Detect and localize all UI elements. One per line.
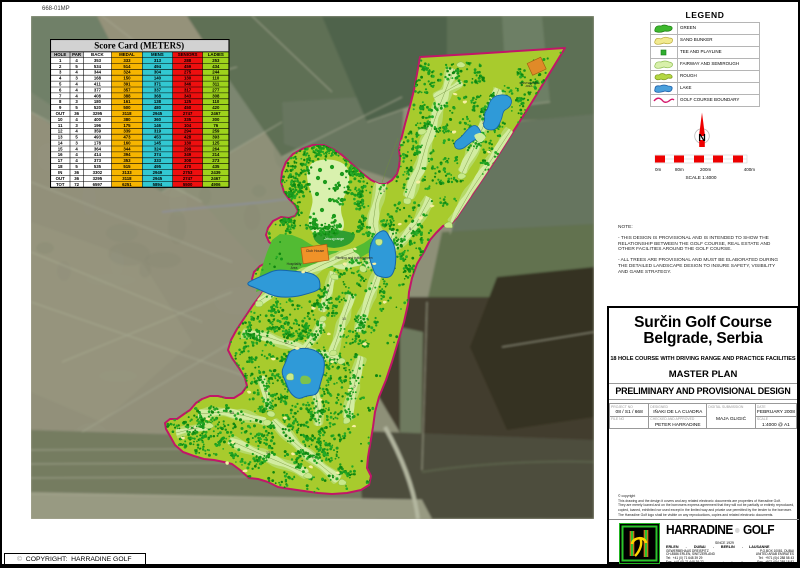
svg-text:11: 11 bbox=[58, 123, 63, 128]
svg-text:TOT: TOT bbox=[56, 182, 65, 187]
svg-text:470: 470 bbox=[184, 164, 192, 169]
svg-text:259: 259 bbox=[212, 129, 220, 134]
svg-text:36: 36 bbox=[74, 111, 79, 116]
svg-text:10: 10 bbox=[58, 117, 63, 122]
svg-text:353: 353 bbox=[123, 158, 131, 163]
svg-text:6597: 6597 bbox=[93, 182, 103, 187]
svg-text:244: 244 bbox=[212, 70, 220, 75]
svg-text:18: 18 bbox=[58, 164, 63, 169]
svg-text:2949: 2949 bbox=[153, 170, 163, 175]
svg-text:76: 76 bbox=[213, 123, 218, 128]
svg-text:110: 110 bbox=[212, 99, 220, 104]
svg-text:308: 308 bbox=[184, 158, 192, 163]
svg-text:435: 435 bbox=[212, 164, 220, 169]
svg-text:214: 214 bbox=[212, 152, 220, 157]
svg-text:300: 300 bbox=[212, 117, 220, 122]
svg-text:MENS: MENS bbox=[151, 52, 164, 57]
svg-text:13: 13 bbox=[58, 135, 63, 140]
svg-text:3295: 3295 bbox=[93, 111, 103, 116]
svg-text:373: 373 bbox=[94, 158, 102, 163]
svg-text:36: 36 bbox=[74, 176, 79, 181]
svg-text:SENIORS: SENIORS bbox=[178, 52, 198, 57]
svg-text:2467: 2467 bbox=[211, 111, 221, 116]
svg-text:138: 138 bbox=[154, 99, 162, 104]
svg-text:2467: 2467 bbox=[211, 176, 221, 181]
svg-text:304: 304 bbox=[154, 70, 162, 75]
svg-text:357: 357 bbox=[123, 87, 131, 92]
svg-text:535: 535 bbox=[94, 164, 102, 169]
svg-text:0m: 0m bbox=[655, 167, 662, 172]
svg-text:428: 428 bbox=[184, 135, 192, 140]
svg-text:146: 146 bbox=[154, 123, 162, 128]
svg-text:LADIES: LADIES bbox=[208, 52, 224, 57]
svg-text:371: 371 bbox=[154, 82, 162, 87]
svg-text:319: 319 bbox=[154, 129, 162, 134]
svg-text:333: 333 bbox=[154, 158, 162, 163]
svg-text:125: 125 bbox=[184, 99, 192, 104]
svg-text:359: 359 bbox=[94, 129, 102, 134]
svg-text:7: 7 bbox=[354, 385, 356, 389]
svg-text:368: 368 bbox=[154, 93, 162, 98]
svg-text:344: 344 bbox=[94, 70, 102, 75]
svg-text:Club House: Club House bbox=[306, 249, 324, 253]
svg-text:313: 313 bbox=[154, 58, 162, 63]
svg-text:200m: 200m bbox=[700, 167, 712, 172]
svg-text:2945: 2945 bbox=[153, 111, 163, 116]
svg-text:72: 72 bbox=[74, 182, 79, 187]
svg-text:391: 391 bbox=[123, 82, 131, 87]
svg-text:414: 414 bbox=[94, 152, 102, 157]
svg-text:OUT: OUT bbox=[56, 111, 65, 116]
svg-text:324: 324 bbox=[123, 70, 131, 75]
svg-text:SCALE 1:4000: SCALE 1:4000 bbox=[685, 175, 716, 180]
svg-text:6251: 6251 bbox=[122, 182, 132, 187]
svg-text:16: 16 bbox=[58, 152, 63, 157]
svg-text:400: 400 bbox=[94, 117, 102, 122]
svg-text:453: 453 bbox=[154, 135, 162, 140]
svg-text:339: 339 bbox=[123, 129, 131, 134]
svg-text:BACK: BACK bbox=[91, 52, 105, 57]
svg-text:3295: 3295 bbox=[93, 176, 103, 181]
svg-text:3302: 3302 bbox=[93, 170, 103, 175]
svg-text:AREA: AREA bbox=[525, 84, 532, 88]
svg-text:HOLE: HOLE bbox=[54, 52, 66, 57]
svg-text:353: 353 bbox=[94, 58, 102, 63]
svg-text:393: 393 bbox=[212, 135, 220, 140]
svg-text:311: 311 bbox=[212, 82, 220, 87]
svg-text:411: 411 bbox=[94, 82, 102, 87]
svg-text:317: 317 bbox=[184, 87, 192, 92]
svg-text:308: 308 bbox=[212, 93, 220, 98]
svg-text:514: 514 bbox=[123, 64, 131, 69]
svg-text:273: 273 bbox=[212, 158, 220, 163]
svg-text:388: 388 bbox=[123, 93, 131, 98]
svg-text:IN: IN bbox=[58, 170, 62, 175]
svg-text:408: 408 bbox=[94, 93, 102, 98]
svg-text:288: 288 bbox=[184, 58, 192, 63]
svg-text:2439: 2439 bbox=[211, 170, 221, 175]
svg-text:324: 324 bbox=[154, 146, 162, 151]
svg-text:520: 520 bbox=[94, 105, 102, 110]
svg-text:PAR: PAR bbox=[72, 52, 82, 57]
svg-text:110: 110 bbox=[212, 76, 220, 81]
svg-text:493: 493 bbox=[94, 135, 102, 140]
svg-text:434: 434 bbox=[212, 64, 220, 69]
svg-text:337: 337 bbox=[154, 87, 162, 92]
svg-text:MEDAL: MEDAL bbox=[119, 52, 135, 57]
svg-text:2747: 2747 bbox=[183, 176, 193, 181]
svg-text:1: 1 bbox=[383, 189, 385, 193]
svg-text:343: 343 bbox=[184, 93, 192, 98]
svg-text:5500: 5500 bbox=[183, 182, 193, 187]
svg-text:5894: 5894 bbox=[153, 182, 163, 187]
svg-text:495: 495 bbox=[154, 164, 162, 169]
svg-text:150: 150 bbox=[123, 76, 131, 81]
svg-text:360: 360 bbox=[154, 117, 162, 122]
svg-text:380: 380 bbox=[123, 117, 131, 122]
svg-text:5: 5 bbox=[409, 227, 411, 231]
svg-text:480: 480 bbox=[154, 105, 162, 110]
svg-text:180: 180 bbox=[94, 99, 102, 104]
svg-text:534: 534 bbox=[94, 64, 102, 69]
svg-text:349: 349 bbox=[184, 152, 192, 157]
svg-text:275: 275 bbox=[184, 70, 192, 75]
svg-text:145: 145 bbox=[154, 141, 162, 146]
svg-text:14: 14 bbox=[58, 141, 63, 146]
svg-text:130: 130 bbox=[184, 141, 192, 146]
svg-text:299: 299 bbox=[184, 146, 192, 151]
svg-text:125: 125 bbox=[212, 141, 220, 146]
svg-text:Driving range: Driving range bbox=[324, 237, 344, 241]
svg-text:4906: 4906 bbox=[211, 182, 221, 187]
svg-text:Score Card (METERS): Score Card (METERS) bbox=[94, 40, 184, 50]
svg-text:473: 473 bbox=[123, 135, 131, 140]
svg-text:394: 394 bbox=[123, 152, 131, 157]
svg-text:N: N bbox=[698, 132, 706, 144]
svg-text:130: 130 bbox=[184, 76, 192, 81]
svg-text:161: 161 bbox=[123, 99, 131, 104]
svg-text:140: 140 bbox=[154, 76, 162, 81]
svg-text:15: 15 bbox=[58, 146, 63, 151]
svg-text:Area: Area bbox=[291, 266, 298, 270]
svg-text:344: 344 bbox=[123, 146, 131, 151]
svg-text:104: 104 bbox=[184, 123, 192, 128]
svg-text:80m: 80m bbox=[675, 167, 684, 172]
svg-text:168: 168 bbox=[94, 76, 102, 81]
svg-text:420: 420 bbox=[212, 105, 220, 110]
svg-text:2945: 2945 bbox=[153, 176, 163, 181]
svg-text:2753: 2753 bbox=[183, 170, 193, 175]
svg-text:175: 175 bbox=[123, 123, 131, 128]
svg-text:374: 374 bbox=[154, 152, 162, 157]
svg-text:500: 500 bbox=[123, 105, 131, 110]
svg-text:3118: 3118 bbox=[122, 111, 132, 116]
svg-text:12: 12 bbox=[58, 129, 63, 134]
svg-text:3133: 3133 bbox=[122, 170, 132, 175]
svg-text:Pitching and putting green: Pitching and putting green bbox=[335, 256, 372, 260]
svg-text:335: 335 bbox=[184, 117, 192, 122]
svg-text:377: 377 bbox=[94, 87, 102, 92]
svg-text:294: 294 bbox=[184, 129, 192, 134]
svg-text:17: 17 bbox=[58, 158, 63, 163]
svg-text:277: 277 bbox=[212, 87, 220, 92]
svg-text:494: 494 bbox=[154, 64, 162, 69]
svg-text:346: 346 bbox=[184, 82, 192, 87]
svg-text:178: 178 bbox=[94, 141, 102, 146]
svg-text:253: 253 bbox=[212, 58, 220, 63]
svg-text:515: 515 bbox=[123, 164, 131, 169]
svg-text:2747: 2747 bbox=[183, 111, 193, 116]
svg-text:459: 459 bbox=[184, 64, 192, 69]
svg-text:450: 450 bbox=[184, 105, 192, 110]
svg-text:364: 364 bbox=[94, 146, 102, 151]
svg-text:10: 10 bbox=[342, 317, 346, 321]
svg-text:36: 36 bbox=[74, 170, 79, 175]
svg-text:400m: 400m bbox=[744, 167, 756, 172]
svg-text:OUT: OUT bbox=[56, 176, 65, 181]
svg-text:333: 333 bbox=[123, 58, 131, 63]
svg-text:264: 264 bbox=[212, 146, 220, 151]
svg-text:196: 196 bbox=[94, 123, 102, 128]
svg-text:3118: 3118 bbox=[122, 176, 132, 181]
svg-text:160: 160 bbox=[123, 141, 131, 146]
